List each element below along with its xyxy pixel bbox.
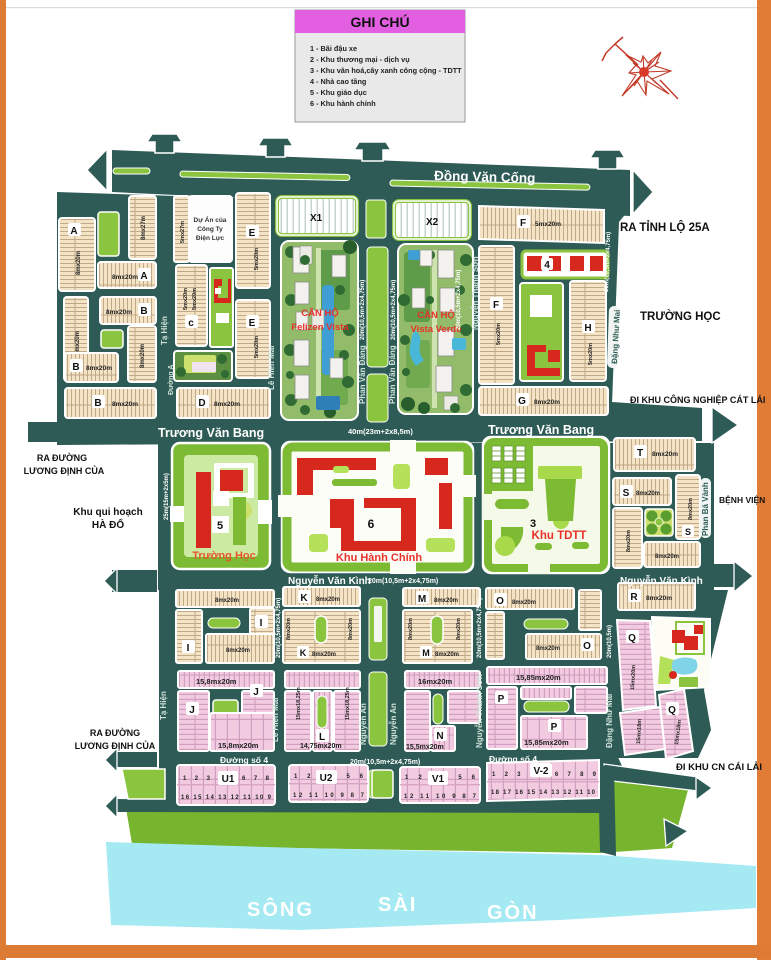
svg-text:8mx20m: 8mx20m [512, 600, 536, 606]
svg-text:1 - Bãi đậu xe: 1 - Bãi đậu xe [310, 44, 357, 53]
svg-text:GHI CHÚ: GHI CHÚ [350, 13, 409, 30]
svg-text:I: I [187, 643, 190, 654]
svg-text:E: E [249, 318, 256, 329]
svg-text:I: I [260, 618, 263, 629]
svg-text:8mx27m: 8mx27m [141, 216, 147, 240]
svg-text:F: F [520, 218, 526, 229]
svg-text:5mx20m: 5mx20m [254, 336, 260, 358]
svg-text:Công Ty: Công Ty [197, 226, 223, 233]
svg-text:Q: Q [668, 705, 676, 716]
svg-text:Khu Hành Chính: Khu Hành Chính [336, 552, 422, 564]
svg-text:G: G [518, 396, 526, 407]
svg-text:25m(15m+2x5m): 25m(15m+2x5m) [164, 473, 170, 520]
svg-text:B: B [94, 398, 101, 409]
svg-text:5mx20m: 5mx20m [496, 323, 502, 345]
svg-text:R: R [630, 592, 638, 603]
svg-text:Đặng Như Mai: Đặng Như Mai [605, 694, 614, 748]
svg-text:20m(10,5m+2x4,75m): 20m(10,5m+2x4,75m) [391, 280, 397, 340]
svg-text:V-2: V-2 [533, 766, 548, 777]
svg-text:8mx20m: 8mx20m [636, 491, 660, 497]
svg-text:5mx27m: 5mx27m [180, 221, 186, 243]
svg-text:8mx20m: 8mx20m [434, 598, 458, 604]
svg-text:ĐI KHU CN CÁI LẢI: ĐI KHU CN CÁI LẢI [676, 761, 762, 773]
svg-text:X2: X2 [426, 217, 439, 228]
svg-text:8mx20m: 8mx20m [316, 597, 340, 603]
svg-text:Tạ Hiện: Tạ Hiện [160, 316, 169, 345]
svg-text:Lê Hiền Mai: Lê Hiền Mai [271, 698, 280, 742]
svg-text:5mx20m: 5mx20m [192, 288, 198, 310]
svg-text:20m(10,5m+2x4,75m): 20m(10,5m+2x4,75m) [456, 270, 462, 330]
svg-text:O: O [583, 641, 591, 652]
svg-text:T: T [637, 448, 643, 459]
svg-text:20m(10,5m+2x4,75m): 20m(10,5m+2x4,75m) [350, 759, 420, 766]
svg-text:P: P [498, 694, 505, 705]
svg-text:RA ĐƯỜNG: RA ĐƯỜNG [37, 452, 87, 463]
svg-text:15mx18,25m: 15mx18,25m [345, 687, 351, 720]
svg-text:8mx20m: 8mx20m [348, 618, 354, 640]
svg-text:J: J [189, 705, 195, 716]
svg-text:Phan Văn Đáng: Phan Văn Đáng [358, 345, 367, 404]
svg-text:B: B [140, 306, 147, 317]
svg-text:2 - Khu thương mại - dịch vụ: 2 - Khu thương mại - dịch vụ [310, 55, 410, 64]
svg-text:6: 6 [368, 517, 375, 531]
svg-text:ĐI KHU CÔNG NGHIỆP CÁT LÁI: ĐI KHU CÔNG NGHIỆP CÁT LÁI [630, 394, 765, 405]
svg-text:P: P [551, 722, 558, 733]
svg-text:Tạ Hiện: Tạ Hiện [159, 691, 168, 720]
svg-text:N: N [436, 731, 443, 742]
svg-text:20m(10,5m+2x4,75m): 20m(10,5m+2x4,75m) [368, 578, 438, 585]
svg-text:Nguyễn An: Nguyễn An [359, 703, 368, 745]
svg-text:Nguyễn Văn Kình: Nguyễn Văn Kình [620, 574, 703, 587]
svg-text:20m(10,5m+2x4,75m): 20m(10,5m+2x4,75m) [477, 598, 483, 658]
svg-text:8mx20m: 8mx20m [226, 648, 250, 654]
svg-text:M: M [418, 594, 426, 605]
svg-text:8mx20m: 8mx20m [140, 344, 146, 368]
svg-text:GÒN: GÒN [487, 900, 539, 924]
svg-text:X1: X1 [310, 213, 323, 224]
svg-text:Q: Q [628, 633, 636, 644]
svg-text:TRƯỜNG HỌC: TRƯỜNG HỌC [640, 310, 721, 323]
svg-text:S: S [685, 527, 691, 537]
svg-text:8mx20m: 8mx20m [112, 401, 138, 408]
svg-text:8mx20m: 8mx20m [435, 652, 459, 658]
svg-text:CĂN HỘ: CĂN HỘ [417, 309, 454, 321]
svg-text:Nguyễn Thanh Sơn: Nguyễn Thanh Sơn [475, 674, 484, 748]
svg-text:5: 5 [217, 520, 223, 532]
svg-text:8mx20m: 8mx20m [626, 530, 632, 552]
svg-text:SÀI: SÀI [378, 893, 417, 916]
svg-text:SÔNG: SÔNG [247, 897, 314, 921]
svg-text:8mx20m: 8mx20m [536, 646, 560, 652]
svg-text:5mx20m: 5mx20m [183, 288, 189, 310]
svg-text:15,8mx20m: 15,8mx20m [218, 741, 259, 750]
svg-text:V1: V1 [432, 774, 445, 785]
svg-text:15mx18,25m: 15mx18,25m [296, 687, 302, 720]
svg-text:8mx20m: 8mx20m [534, 399, 560, 406]
svg-text:Điện Lực: Điện Lực [196, 235, 225, 242]
svg-text:HÀ ĐỔ: HÀ ĐỔ [92, 518, 124, 531]
svg-text:U1: U1 [222, 774, 235, 785]
svg-text:A: A [70, 226, 77, 237]
svg-text:c: c [188, 318, 194, 329]
svg-text:8mx20m: 8mx20m [312, 652, 336, 658]
svg-text:18 17 16 15 14 13 12 11 10: 18 17 16 15 14 13 12 11 10 [491, 790, 596, 796]
svg-text:20m(10,5m+2x4,75m): 20m(10,5m+2x4,75m) [276, 598, 282, 658]
svg-text:6 - Khu hành chính: 6 - Khu hành chính [310, 99, 376, 108]
svg-text:Đường số 4: Đường số 4 [220, 755, 268, 765]
svg-text:8mx20m: 8mx20m [106, 309, 132, 316]
svg-text:5mx20m: 5mx20m [535, 221, 561, 228]
svg-text:3 - Khu văn hoá,cây xanh công: 3 - Khu văn hoá,cây xanh công cộng - TDT… [310, 66, 462, 75]
svg-text:Vista Verde: Vista Verde [410, 324, 461, 335]
svg-text:15,5mx20m: 15,5mx20m [406, 744, 444, 751]
svg-text:4 - Nhà cao tầng: 4 - Nhà cao tầng [310, 77, 366, 86]
svg-text:BỆNH VIỆN: BỆNH VIỆN [719, 494, 765, 505]
svg-text:D: D [198, 398, 205, 409]
svg-text:Đường số 4: Đường số 4 [489, 754, 537, 764]
svg-text:LƯƠNG ĐỊNH CỦA: LƯƠNG ĐỊNH CỦA [24, 465, 105, 476]
svg-text:K: K [300, 593, 308, 604]
svg-text:LƯƠNG ĐỊNH CỦA: LƯƠNG ĐỊNH CỦA [75, 740, 156, 751]
svg-text:A: A [140, 271, 147, 282]
svg-text:8mx20m: 8mx20m [652, 451, 678, 458]
svg-text:L: L [319, 732, 325, 743]
svg-text:4: 4 [544, 260, 550, 271]
svg-text:8mx20m: 8mx20m [214, 401, 240, 408]
svg-text:8mx20m: 8mx20m [286, 618, 292, 640]
svg-text:8mx20m: 8mx20m [646, 595, 672, 602]
svg-text:O: O [496, 596, 504, 607]
svg-text:Nguyễn Thanh Sơn: Nguyễn Thanh Sơn [471, 256, 480, 330]
svg-text:M: M [422, 648, 430, 658]
svg-text:Phan Bá Vành: Phan Bá Vành [701, 482, 710, 536]
svg-text:F: F [493, 300, 499, 311]
svg-text:8mx20m: 8mx20m [408, 618, 414, 640]
svg-text:8mx20m: 8mx20m [655, 554, 679, 560]
svg-text:8mx20m: 8mx20m [688, 498, 694, 520]
svg-text:Dự Án của: Dự Án của [194, 215, 227, 224]
svg-text:Nguyễn An: Nguyễn An [389, 703, 398, 745]
svg-text:Felizen Vista: Felizen Vista [291, 322, 349, 333]
svg-text:S: S [623, 488, 630, 499]
svg-text:Nguyễn Văn Kình: Nguyễn Văn Kình [288, 574, 371, 587]
svg-text:40m(23m+2x8,5m): 40m(23m+2x8,5m) [348, 427, 413, 436]
svg-text:CĂN HỘ: CĂN HỘ [301, 307, 338, 319]
svg-text:Phan Văn Đáng: Phan Văn Đáng [388, 345, 397, 404]
svg-text:Đường A: Đường A [168, 365, 175, 395]
svg-text:20m(10,5m): 20m(10,5m) [607, 625, 613, 658]
svg-text:E: E [249, 228, 256, 239]
svg-text:15,85mx20m: 15,85mx20m [524, 738, 569, 747]
svg-text:RA ĐƯỜNG: RA ĐƯỜNG [90, 727, 140, 738]
svg-text:15,85mx20m: 15,85mx20m [516, 673, 561, 682]
svg-text:15,8mx20m: 15,8mx20m [196, 677, 237, 686]
svg-text:Khu TDTT: Khu TDTT [532, 530, 587, 542]
svg-text:5 - Khu giáo dục: 5 - Khu giáo dục [310, 88, 367, 97]
svg-text:U2: U2 [320, 773, 333, 784]
svg-text:H: H [584, 323, 591, 334]
svg-text:8mx20m: 8mx20m [215, 598, 239, 604]
svg-text:5mx20m: 5mx20m [254, 248, 260, 270]
svg-text:Lê Hiền Mai: Lê Hiền Mai [267, 346, 276, 390]
svg-text:8mx20m: 8mx20m [86, 365, 112, 372]
svg-text:8mx20m: 8mx20m [75, 331, 81, 355]
svg-text:3: 3 [530, 518, 536, 530]
svg-text:8mx20m: 8mx20m [76, 251, 82, 275]
svg-text:Trương Văn Bang: Trương Văn Bang [488, 423, 594, 437]
svg-text:B: B [72, 362, 79, 373]
svg-text:8mx20m: 8mx20m [456, 618, 462, 640]
svg-text:K: K [300, 648, 307, 658]
svg-text:Khu qui hoạch: Khu qui hoạch [73, 507, 142, 518]
svg-text:5mx20m: 5mx20m [588, 343, 594, 365]
svg-text:Trường Học: Trường Học [192, 550, 255, 562]
svg-text:Trương Văn Bang: Trương Văn Bang [158, 426, 264, 440]
svg-text:16mx20m: 16mx20m [418, 677, 453, 686]
svg-text:8mx20m: 8mx20m [112, 274, 138, 281]
svg-text:14,75mx20m: 14,75mx20m [300, 743, 342, 750]
svg-text:Đồng Văn Cống: Đồng Văn Cống [434, 168, 536, 186]
svg-text:20m(10,5m+2x4,75m): 20m(10,5m+2x4,75m) [360, 280, 366, 340]
svg-text:J: J [253, 687, 259, 698]
svg-text:RA TỈNH LỘ 25A: RA TỈNH LỘ 25A [620, 221, 710, 234]
